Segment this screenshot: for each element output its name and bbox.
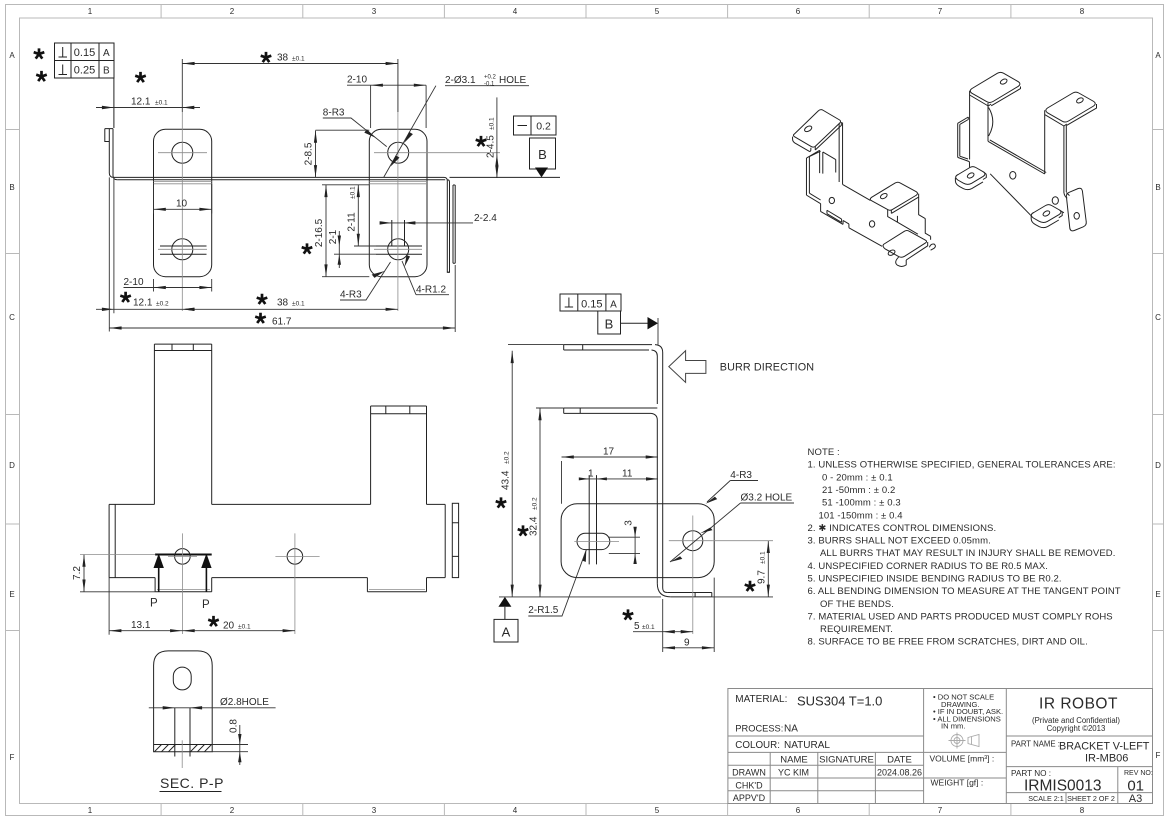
svg-text:38: 38 [277, 297, 289, 308]
svg-text:4: 4 [513, 7, 518, 16]
svg-text:0.2: 0.2 [536, 121, 551, 133]
svg-text:SEC. P-P: SEC. P-P [160, 775, 224, 791]
svg-text:SCALE 2:1: SCALE 2:1 [1028, 794, 1064, 803]
svg-text:PART NAME :: PART NAME : [1011, 740, 1060, 749]
svg-text:12.1: 12.1 [133, 297, 153, 308]
svg-text:F: F [1156, 751, 1161, 760]
svg-text:5: 5 [655, 7, 660, 16]
svg-text:101 -150mm : ± 0.4: 101 -150mm : ± 0.4 [819, 510, 903, 521]
svg-text:DATE: DATE [887, 755, 912, 766]
svg-text:Copyright ©2013: Copyright ©2013 [1047, 724, 1106, 733]
svg-text:61.7: 61.7 [272, 316, 292, 327]
svg-text:32.4: 32.4 [529, 516, 540, 536]
svg-text:5. UNSPECIFIED INSIDE BENDING: 5. UNSPECIFIED INSIDE BENDING RADIUS TO … [808, 574, 1062, 585]
svg-text:1: 1 [88, 806, 93, 815]
svg-text:51 -100mm : ± 0.3: 51 -100mm : ± 0.3 [822, 498, 901, 509]
svg-text:A: A [9, 51, 15, 60]
svg-text:A: A [610, 300, 617, 311]
svg-text:A: A [502, 625, 511, 640]
svg-text:21 -50mm : ± 0.2: 21 -50mm : ± 0.2 [822, 485, 895, 496]
svg-text:17: 17 [603, 446, 615, 457]
svg-text:8: 8 [1080, 7, 1085, 16]
svg-text:11: 11 [622, 468, 633, 479]
svg-text:2: 2 [230, 7, 235, 16]
svg-text:Ø3.2 HOLE: Ø3.2 HOLE [741, 493, 793, 504]
svg-text:1. UNLESS OTHERWISE SPECIFIED,: 1. UNLESS OTHERWISE SPECIFIED, GENERAL T… [808, 460, 1116, 471]
svg-text:B: B [605, 317, 614, 332]
svg-text:D: D [9, 461, 15, 470]
svg-text:5: 5 [655, 806, 660, 815]
svg-text:IR ROBOT: IR ROBOT [1039, 696, 1118, 713]
svg-text:±0.2: ±0.2 [504, 451, 511, 464]
svg-text:10: 10 [176, 199, 188, 210]
svg-text:YC KIM: YC KIM [778, 768, 809, 778]
svg-text:IRMIS0013: IRMIS0013 [1024, 778, 1102, 795]
svg-text:±0.1: ±0.1 [642, 624, 655, 631]
svg-text:±0.2: ±0.2 [156, 300, 169, 307]
svg-text:7: 7 [938, 7, 943, 16]
svg-text:2-10: 2-10 [347, 75, 367, 86]
svg-text:BURR DIRECTION: BURR DIRECTION [720, 361, 814, 373]
svg-text:BRACKET V-LEFT: BRACKET V-LEFT [1059, 741, 1150, 753]
svg-text:0.25: 0.25 [74, 65, 95, 77]
svg-text:REV NO:: REV NO: [1124, 770, 1153, 777]
svg-text:01: 01 [1127, 778, 1144, 795]
svg-text:4-R3: 4-R3 [730, 470, 752, 481]
svg-text:4-R1.2: 4-R1.2 [416, 285, 446, 296]
svg-text:±0.1: ±0.1 [760, 551, 767, 564]
svg-text:2-Ø3.1: 2-Ø3.1 [445, 75, 476, 86]
svg-text:8. SURFACE TO BE FREE FROM SC: 8. SURFACE TO BE FREE FROM SCRATCHES, DI… [808, 637, 1088, 648]
svg-text:P: P [202, 599, 210, 611]
svg-text:43.4: 43.4 [501, 470, 512, 490]
svg-text:DRAWN: DRAWN [732, 768, 766, 778]
svg-text:HOLE: HOLE [499, 75, 527, 86]
svg-text:VOLUME [mm³] :: VOLUME [mm³] : [930, 754, 995, 764]
svg-text:2-8.5: 2-8.5 [304, 142, 315, 165]
svg-text:7: 7 [938, 806, 943, 815]
svg-text:0.15: 0.15 [581, 299, 602, 311]
svg-text:9: 9 [684, 637, 690, 648]
svg-text:4. UNSPECIFIED CORNER RADIUS T: 4. UNSPECIFIED CORNER RADIUS TO BE R0.5 … [808, 561, 1049, 572]
svg-text:MATERIAL:: MATERIAL: [735, 694, 787, 705]
svg-text:COLOUR:: COLOUR: [735, 740, 780, 751]
svg-text:±0.1: ±0.1 [292, 56, 305, 63]
svg-text:WEIGHT [gf] :: WEIGHT [gf] : [931, 778, 984, 788]
svg-text:ALL BURRS THAT MAY RESULT IN I: ALL BURRS THAT MAY RESULT IN INJURY SHAL… [820, 548, 1116, 559]
svg-text:2-R1.5: 2-R1.5 [528, 605, 558, 616]
svg-text:B: B [103, 66, 110, 77]
svg-text:2-11: 2-11 [347, 212, 358, 232]
svg-text:3: 3 [624, 520, 635, 526]
svg-text:OF THE BENDS.: OF THE BENDS. [820, 599, 894, 610]
svg-text:B: B [538, 147, 547, 162]
svg-text:APPV'D: APPV'D [733, 793, 766, 803]
svg-text:5: 5 [634, 621, 640, 632]
svg-text:±0.1: ±0.1 [350, 186, 357, 199]
svg-text:8-R3: 8-R3 [323, 108, 345, 119]
svg-text:2024.08.26: 2024.08.26 [877, 768, 922, 778]
svg-text:±0.1: ±0.1 [155, 100, 168, 107]
svg-text:2-2.4: 2-2.4 [474, 213, 497, 224]
svg-text:Ø2.8HOLE: Ø2.8HOLE [220, 697, 269, 708]
svg-text:SHEET 2 OF 2: SHEET 2 OF 2 [1067, 794, 1115, 803]
svg-text:CHK'D: CHK'D [735, 780, 763, 790]
svg-text:1: 1 [588, 468, 594, 479]
svg-text:9.7: 9.7 [757, 570, 768, 584]
svg-text:F: F [10, 753, 15, 762]
svg-text:A3: A3 [1129, 793, 1142, 805]
svg-text:20: 20 [223, 620, 235, 631]
svg-text:1: 1 [88, 7, 93, 16]
svg-text:6: 6 [796, 806, 801, 815]
svg-text:4: 4 [513, 806, 518, 815]
svg-text:C: C [9, 313, 15, 322]
svg-text:7. MATERIAL USED AND PARTS PRO: 7. MATERIAL USED AND PARTS PRODUCED MUST… [808, 611, 1113, 622]
svg-text:2-16.5: 2-16.5 [314, 218, 325, 247]
svg-text:2: 2 [230, 806, 235, 815]
svg-text:NOTE :: NOTE : [808, 447, 840, 458]
svg-text:±0.1: ±0.1 [292, 300, 305, 307]
svg-text:+0.2: +0.2 [484, 75, 497, 81]
svg-text:2. ✱ INDICATES CONTROL DIMENSI: 2. ✱ INDICATES CONTROL DIMENSIONS. [808, 523, 997, 534]
svg-text:B: B [9, 183, 14, 192]
svg-text:0.15: 0.15 [74, 47, 95, 59]
svg-text:NAME: NAME [780, 755, 807, 766]
svg-text:P: P [150, 598, 158, 610]
svg-text:E: E [1155, 590, 1160, 599]
svg-text:REQUIREMENT.: REQUIREMENT. [820, 624, 893, 635]
svg-text:12.1: 12.1 [131, 97, 151, 108]
svg-text:4-R3: 4-R3 [340, 290, 362, 301]
svg-text:SUS304 T=1.0: SUS304 T=1.0 [797, 694, 882, 709]
svg-text:±0.2: ±0.2 [532, 497, 539, 510]
svg-text:B: B [1155, 183, 1160, 192]
svg-text:7.2: 7.2 [72, 566, 83, 580]
svg-text:NA: NA [784, 724, 798, 735]
svg-text:IN mm.: IN mm. [941, 722, 965, 731]
svg-text:SIGNATURE: SIGNATURE [819, 755, 874, 766]
svg-text:3: 3 [372, 7, 377, 16]
svg-text:A: A [1155, 51, 1161, 60]
svg-text:2-1: 2-1 [328, 229, 339, 244]
svg-text:2-4.5: 2-4.5 [486, 135, 497, 158]
svg-text:8: 8 [1080, 806, 1085, 815]
svg-text:0 - 20mm : ± 0.1: 0 - 20mm : ± 0.1 [822, 472, 893, 483]
svg-text:A: A [103, 48, 110, 59]
svg-text:13.1: 13.1 [131, 620, 151, 631]
svg-text:E: E [9, 590, 14, 599]
svg-text:3. BURRS SHALL NOT EXCEED 0.05: 3. BURRS SHALL NOT EXCEED 0.05mm. [808, 536, 991, 547]
svg-text:±0.1: ±0.1 [489, 117, 496, 130]
svg-text:0.8: 0.8 [229, 719, 240, 733]
svg-text:IR-MB06: IR-MB06 [1085, 753, 1128, 765]
svg-text:6. ALL BENDING DIMENSION TO ME: 6. ALL BENDING DIMENSION TO MEASURE AT T… [808, 586, 1121, 597]
svg-text:-0.1: -0.1 [484, 82, 495, 88]
svg-text:3: 3 [372, 806, 377, 815]
svg-text:38: 38 [277, 53, 289, 64]
svg-text:±0.1: ±0.1 [238, 623, 251, 630]
svg-text:PROCESS:: PROCESS: [735, 724, 783, 734]
svg-text:C: C [1155, 313, 1161, 322]
svg-text:2-10: 2-10 [124, 277, 144, 288]
svg-text:6: 6 [796, 7, 801, 16]
svg-text:D: D [1155, 461, 1161, 470]
svg-text:NATURAL: NATURAL [784, 740, 830, 751]
